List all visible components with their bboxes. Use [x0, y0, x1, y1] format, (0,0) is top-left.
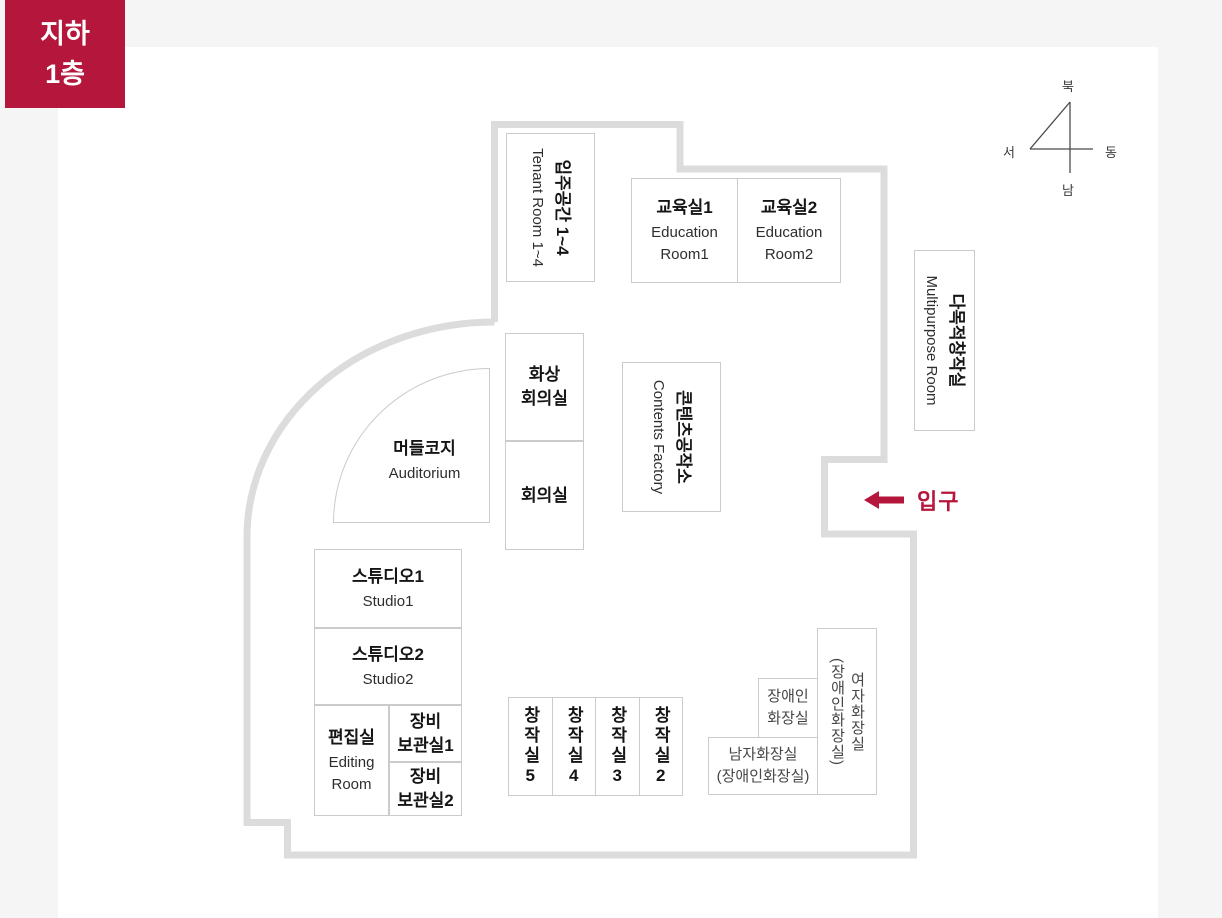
room-contents-factory-name: 콘텐츠공작소: [672, 390, 696, 484]
entrance-marker: 입구: [864, 483, 959, 517]
compass-east-label: 동: [1105, 142, 1117, 161]
room-creation5-name: 창작실5: [522, 706, 539, 788]
room-auditorium-name: 머들코지: [393, 437, 456, 461]
room-toilet-men-name: 남자화장실 (장애인화장실): [717, 744, 810, 788]
room-video-conference-name: 화상 회의실: [521, 363, 568, 411]
room-toilet-accessible: 장애인 화장실: [758, 678, 818, 738]
room-multipurpose-name-en: Multipurpose Room: [921, 275, 943, 405]
room-multipurpose-name: 다목적창작실: [945, 294, 969, 388]
creation-rooms-block: 창작실5 창작실4 창작실3 창작실2: [508, 697, 683, 796]
room-education1-name-en: Education Room1: [632, 222, 737, 266]
room-toilet-women: 여자화장실 (장애인화장실): [817, 628, 877, 795]
room-studio1: 스튜디오1 Studio1: [314, 549, 462, 628]
room-auditorium-name-en: Auditorium: [389, 463, 461, 485]
room-editing-name-en: Editing Room: [315, 752, 388, 796]
room-contents-factory-name-en: Contents Factory: [648, 380, 670, 494]
room-video-conference: 화상 회의실: [505, 333, 584, 441]
room-storage2: 장비 보관실2: [389, 762, 462, 816]
compass-needle-icon: [985, 68, 1135, 208]
room-studio1-name-en: Studio1: [363, 591, 414, 613]
room-education2-name-en: Education Room2: [738, 222, 840, 266]
room-meeting-name: 회의실: [521, 484, 568, 508]
room-creation2: 창작실2: [640, 698, 683, 795]
room-toilet-women-sub: (장애인화장실): [830, 658, 845, 766]
floor-plan-page: 지하 1층 입주공간 1~4 Tenant Room 1~4 교육실1 Educ…: [0, 0, 1222, 918]
entrance-label: 입구: [917, 484, 959, 516]
room-studio2-name-en: Studio2: [363, 669, 414, 691]
compass-north-label: 북: [1062, 76, 1074, 95]
room-tenant-name-en: Tenant Room 1~4: [527, 148, 549, 267]
room-contents-factory: 콘텐츠공작소 Contents Factory: [622, 362, 721, 512]
room-creation3: 창작실3: [596, 698, 640, 795]
room-education1-name: 교육실1: [656, 196, 712, 220]
room-meeting: 회의실: [505, 441, 584, 550]
room-tenant: 입주공간 1~4 Tenant Room 1~4: [506, 133, 595, 282]
room-creation3-name: 창작실3: [609, 706, 626, 788]
room-creation5: 창작실5: [509, 698, 553, 795]
room-storage1: 장비 보관실1: [389, 705, 462, 762]
room-studio2-name: 스튜디오2: [352, 643, 424, 667]
room-toilet-women-name: 여자화장실: [850, 672, 865, 752]
room-tenant-name: 입주공간 1~4: [551, 159, 575, 255]
room-multipurpose: 다목적창작실 Multipurpose Room: [914, 250, 975, 431]
compass-south-label: 남: [1062, 180, 1074, 199]
room-editing-name: 편집실: [328, 726, 375, 750]
room-studio1-name: 스튜디오1: [352, 565, 424, 589]
floor-badge: 지하 1층: [5, 0, 125, 108]
compass: 북 서 동 남: [985, 68, 1135, 208]
room-creation2-name: 창작실2: [652, 706, 669, 788]
room-creation4-name: 창작실4: [565, 706, 582, 788]
compass-west-label: 서: [1003, 142, 1015, 161]
room-editing: 편집실 Editing Room: [314, 705, 389, 816]
room-storage2-name: 장비 보관실2: [397, 765, 453, 813]
room-education1: 교육실1 Education Room1: [631, 178, 738, 283]
room-toilet-accessible-name: 장애인 화장실: [767, 686, 808, 730]
entrance-arrow-icon: [864, 491, 904, 509]
room-education2-name: 교육실2: [761, 196, 817, 220]
room-education2: 교육실2 Education Room2: [737, 178, 841, 283]
room-toilet-men: 남자화장실 (장애인화장실): [708, 737, 818, 795]
room-storage1-name: 장비 보관실1: [397, 710, 453, 758]
room-creation4: 창작실4: [553, 698, 597, 795]
room-studio2: 스튜디오2 Studio2: [314, 628, 462, 705]
